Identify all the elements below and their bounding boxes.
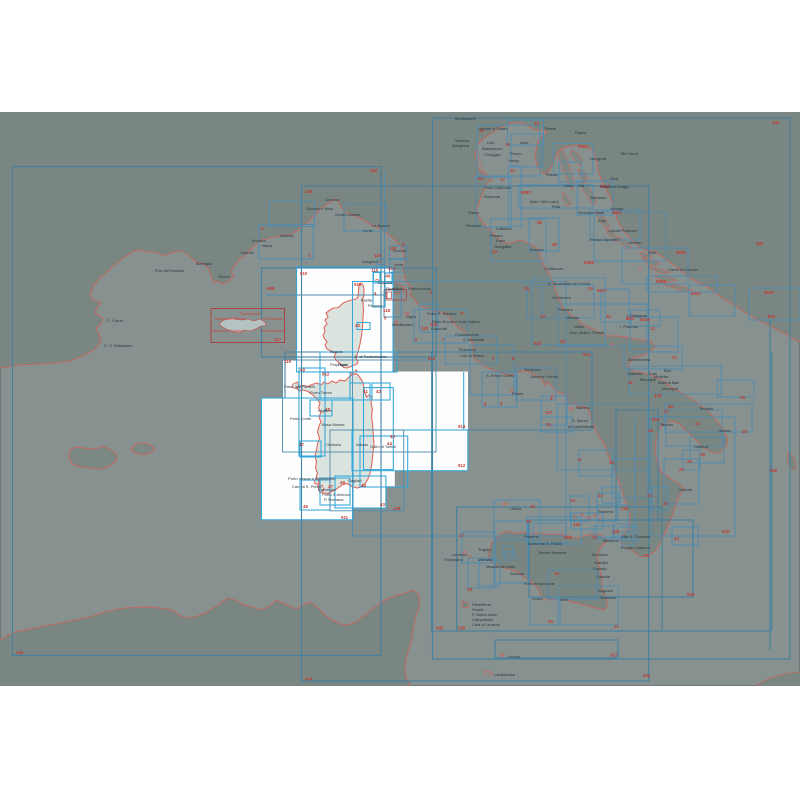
svg-text:Gallipoli: Gallipoli bbox=[694, 444, 708, 449]
svg-text:122: 122 bbox=[421, 326, 429, 331]
svg-text:Giulianova: Giulianova bbox=[552, 295, 572, 300]
svg-text:36: 36 bbox=[537, 220, 542, 225]
svg-text:Rimini: Rimini bbox=[468, 210, 479, 215]
svg-text:116: 116 bbox=[371, 268, 379, 273]
svg-text:432: 432 bbox=[16, 650, 24, 655]
svg-text:17: 17 bbox=[500, 177, 505, 182]
svg-text:914: 914 bbox=[583, 352, 591, 357]
svg-text:920: 920 bbox=[768, 314, 776, 319]
svg-text:Ancona: Ancona bbox=[530, 247, 544, 252]
svg-text:919: 919 bbox=[652, 417, 660, 422]
svg-text:40: 40 bbox=[386, 274, 391, 279]
svg-text:18: 18 bbox=[467, 587, 472, 592]
svg-text:27: 27 bbox=[664, 409, 669, 414]
svg-text:Terracina: Terracina bbox=[524, 367, 541, 372]
svg-text:Canal di Curzola: Canal di Curzola bbox=[668, 267, 698, 272]
svg-text:S. Felice Circeo: S. Felice Circeo bbox=[486, 373, 515, 378]
svg-text:Marsiglia: Marsiglia bbox=[196, 261, 213, 266]
svg-text:Cres: Cres bbox=[564, 183, 572, 188]
svg-text:Porto Vesme e Portoscuso: Porto Vesme e Portoscuso bbox=[288, 476, 336, 481]
svg-text:24: 24 bbox=[674, 536, 679, 541]
svg-text:43: 43 bbox=[390, 434, 395, 439]
svg-text:Pescara: Pescara bbox=[558, 307, 573, 312]
svg-text:Imperia: Imperia bbox=[280, 233, 294, 238]
svg-text:Reovska Vrata: Reovska Vrata bbox=[578, 210, 605, 215]
svg-text:Novigrad: Novigrad bbox=[590, 156, 606, 161]
svg-text:914: 914 bbox=[458, 424, 466, 429]
svg-text:I. Pelagosa: I. Pelagosa bbox=[627, 313, 648, 318]
svg-text:31: 31 bbox=[628, 380, 633, 385]
svg-text:Anc. della I. Tremiti: Anc. della I. Tremiti bbox=[570, 330, 604, 335]
svg-text:Chioggia: Chioggia bbox=[484, 152, 501, 157]
svg-text:19: 19 bbox=[534, 121, 539, 126]
svg-text:25: 25 bbox=[687, 459, 692, 464]
svg-text:Cannes: Cannes bbox=[240, 250, 254, 255]
svg-text:Giardini: Giardini bbox=[594, 560, 608, 565]
svg-text:Monopoli: Monopoli bbox=[662, 386, 678, 391]
svg-text:35: 35 bbox=[552, 242, 557, 247]
svg-text:432: 432 bbox=[370, 168, 378, 173]
svg-text:Ustica: Ustica bbox=[510, 506, 522, 511]
svg-text:Canale Parmani: Canale Parmani bbox=[608, 228, 637, 233]
svg-text:913: 913 bbox=[428, 356, 436, 361]
svg-text:16: 16 bbox=[505, 142, 510, 147]
svg-text:6005: 6005 bbox=[676, 250, 686, 255]
svg-text:Isola: Isola bbox=[520, 140, 529, 145]
svg-text:Taormina: Taormina bbox=[591, 552, 608, 557]
svg-text:17: 17 bbox=[459, 533, 464, 538]
svg-text:Lido: Lido bbox=[487, 140, 495, 145]
svg-text:Gorgona: Gorgona bbox=[362, 259, 378, 264]
svg-text:Prolaz Zapuntel: Prolaz Zapuntel bbox=[590, 237, 618, 242]
svg-text:44: 44 bbox=[361, 483, 366, 488]
svg-text:Ravenna: Ravenna bbox=[484, 194, 501, 199]
svg-text:6006: 6006 bbox=[656, 279, 666, 284]
svg-text:Ponza: Ponza bbox=[512, 391, 524, 396]
svg-text:Sciacca: Sciacca bbox=[510, 571, 525, 576]
svg-text:11: 11 bbox=[577, 457, 582, 462]
svg-text:6040: 6040 bbox=[764, 290, 774, 295]
svg-text:26: 26 bbox=[648, 428, 653, 433]
svg-text:Porto Ercole e Cala Galera: Porto Ercole e Cala Galera bbox=[432, 319, 481, 324]
svg-text:Pass. dei Fornelli: Pass. dei Fornelli bbox=[284, 384, 315, 389]
svg-text:Malamocco: Malamocco bbox=[482, 146, 503, 151]
svg-text:918: 918 bbox=[687, 592, 695, 597]
svg-text:912: 912 bbox=[458, 463, 466, 468]
svg-text:Nizza: Nizza bbox=[262, 243, 273, 248]
svg-text:Mola di Bari: Mola di Bari bbox=[658, 380, 679, 385]
svg-text:35: 35 bbox=[524, 286, 529, 291]
svg-text:Termini Imerese: Termini Imerese bbox=[538, 550, 567, 555]
svg-text:Sestri Levante: Sestri Levante bbox=[335, 212, 361, 217]
svg-text:19: 19 bbox=[554, 571, 559, 576]
svg-text:Trapani: Trapani bbox=[478, 547, 492, 552]
svg-text:16: 16 bbox=[530, 504, 535, 509]
svg-text:6002: 6002 bbox=[521, 190, 531, 195]
svg-text:41: 41 bbox=[363, 389, 368, 394]
svg-text:di Castellabate: di Castellabate bbox=[568, 424, 595, 429]
svg-text:26: 26 bbox=[679, 467, 684, 472]
svg-text:239: 239 bbox=[458, 626, 466, 631]
svg-text:Marciana Marina: Marciana Marina bbox=[215, 316, 246, 321]
svg-text:Molfetta: Molfetta bbox=[654, 374, 669, 379]
svg-text:6001: 6001 bbox=[578, 144, 588, 149]
svg-text:Pola: Pola bbox=[552, 204, 561, 209]
svg-text:45: 45 bbox=[303, 504, 308, 509]
svg-text:Umag: Umag bbox=[508, 158, 519, 163]
svg-text:23: 23 bbox=[644, 553, 649, 558]
svg-text:118: 118 bbox=[430, 322, 438, 327]
svg-text:911: 911 bbox=[341, 515, 349, 520]
svg-text:43: 43 bbox=[380, 502, 385, 507]
svg-text:909: 909 bbox=[267, 286, 275, 291]
svg-text:Licata: Licata bbox=[532, 596, 543, 601]
svg-text:Novalja: Novalja bbox=[610, 206, 624, 211]
svg-text:Rabac: Rabac bbox=[546, 172, 558, 177]
svg-text:Pianosa: Pianosa bbox=[368, 303, 383, 308]
svg-text:Ajaccio: Ajaccio bbox=[330, 349, 344, 354]
svg-text:Fano: Fano bbox=[496, 238, 506, 243]
svg-text:Porto Garibaldi: Porto Garibaldi bbox=[484, 185, 511, 190]
svg-text:26: 26 bbox=[478, 176, 483, 181]
svg-text:Tibi Kanal: Tibi Kanal bbox=[620, 151, 638, 156]
svg-text:434: 434 bbox=[643, 673, 651, 678]
svg-text:24: 24 bbox=[695, 421, 700, 426]
svg-text:Otranto: Otranto bbox=[718, 428, 732, 433]
svg-text:434: 434 bbox=[305, 189, 313, 194]
svg-text:Favignana: Favignana bbox=[444, 557, 463, 562]
svg-text:917: 917 bbox=[610, 653, 618, 658]
svg-text:Cala di Levante: Cala di Levante bbox=[472, 622, 501, 627]
svg-text:Porto Torres: Porto Torres bbox=[310, 390, 332, 395]
svg-text:P. Romana: P. Romana bbox=[324, 497, 344, 502]
svg-text:116: 116 bbox=[374, 253, 382, 258]
svg-text:Lampedusa: Lampedusa bbox=[494, 672, 516, 677]
svg-text:428: 428 bbox=[654, 393, 662, 398]
svg-text:6008: 6008 bbox=[584, 260, 594, 265]
svg-text:434: 434 bbox=[305, 677, 313, 682]
svg-text:910: 910 bbox=[300, 271, 308, 276]
svg-text:920: 920 bbox=[756, 241, 764, 246]
svg-text:915: 915 bbox=[354, 282, 362, 287]
svg-text:G. di Portovecchio: G. di Portovecchio bbox=[354, 354, 387, 359]
svg-text:20: 20 bbox=[510, 168, 515, 173]
svg-text:Figari: Figari bbox=[338, 362, 348, 367]
svg-text:Barletta: Barletta bbox=[628, 371, 643, 376]
svg-text:435: 435 bbox=[436, 626, 444, 631]
svg-text:129: 129 bbox=[393, 506, 401, 511]
svg-text:13: 13 bbox=[598, 493, 603, 498]
svg-text:Rijeka: Rijeka bbox=[575, 130, 587, 135]
svg-text:Bastia: Bastia bbox=[361, 298, 373, 303]
svg-text:Marina di Campo: Marina di Campo bbox=[213, 328, 244, 333]
svg-text:Cattolica: Cattolica bbox=[496, 226, 512, 231]
svg-text:32: 32 bbox=[606, 314, 611, 319]
svg-text:119: 119 bbox=[284, 359, 292, 364]
svg-text:Lerici: Lerici bbox=[363, 228, 373, 233]
svg-text:Gaeta e Formia: Gaeta e Formia bbox=[530, 374, 559, 379]
svg-text:33: 33 bbox=[560, 339, 565, 344]
svg-text:Trieste: Trieste bbox=[544, 126, 557, 131]
svg-text:Civitanova: Civitanova bbox=[544, 266, 563, 271]
svg-text:La Spezia: La Spezia bbox=[372, 223, 391, 228]
svg-text:Livorno: Livorno bbox=[393, 248, 407, 253]
svg-text:S. Benedetto del Tronto: S. Benedetto del Tronto bbox=[548, 281, 591, 286]
svg-text:Savona e Vado: Savona e Vado bbox=[306, 206, 334, 211]
svg-text:Gela: Gela bbox=[560, 597, 569, 602]
svg-text:Marsala: Marsala bbox=[478, 557, 493, 562]
svg-text:6022: 6022 bbox=[691, 291, 701, 296]
svg-text:920: 920 bbox=[770, 468, 778, 473]
svg-text:Manfredonia: Manfredonia bbox=[628, 357, 651, 362]
svg-text:12: 12 bbox=[650, 326, 655, 331]
svg-text:Catania: Catania bbox=[596, 574, 611, 579]
svg-text:29: 29 bbox=[740, 395, 745, 400]
svg-text:31: 31 bbox=[672, 355, 677, 360]
svg-text:Montecristo: Montecristo bbox=[392, 322, 413, 327]
svg-text:Litorale di Grado: Litorale di Grado bbox=[478, 126, 508, 131]
svg-text:Augusta: Augusta bbox=[598, 588, 613, 593]
svg-text:Bari: Bari bbox=[664, 368, 671, 373]
svg-text:15: 15 bbox=[526, 519, 531, 524]
svg-text:Mali i Veli Losinj: Mali i Veli Losinj bbox=[530, 199, 559, 204]
svg-text:Senigallia: Senigallia bbox=[494, 244, 512, 249]
svg-text:118: 118 bbox=[383, 308, 391, 313]
svg-text:Mazara del Vallo: Mazara del Vallo bbox=[486, 564, 516, 569]
svg-text:42: 42 bbox=[376, 389, 381, 394]
svg-text:Siracusa: Siracusa bbox=[600, 595, 616, 600]
svg-text:Vasto: Vasto bbox=[574, 324, 585, 329]
svg-text:127: 127 bbox=[545, 410, 553, 415]
svg-text:Porto Conte: Porto Conte bbox=[290, 416, 312, 421]
svg-text:912: 912 bbox=[322, 372, 330, 377]
svg-text:919: 919 bbox=[722, 529, 730, 534]
svg-text:Arbata: Arbata bbox=[356, 442, 369, 447]
svg-text:Jubranec: Jubranec bbox=[590, 195, 606, 200]
svg-text:S. Marco: S. Marco bbox=[572, 418, 589, 423]
svg-text:40: 40 bbox=[355, 323, 360, 328]
svg-text:Riccione: Riccione bbox=[466, 223, 482, 228]
svg-text:Zara: Zara bbox=[598, 218, 607, 223]
svg-text:Pirano: Pirano bbox=[510, 151, 522, 156]
svg-text:Riposto: Riposto bbox=[593, 566, 607, 571]
svg-text:28: 28 bbox=[700, 452, 705, 457]
svg-text:230: 230 bbox=[621, 506, 629, 511]
svg-text:Sibenic: Sibenic bbox=[628, 240, 641, 245]
svg-text:I. Pianosa: I. Pianosa bbox=[620, 324, 639, 329]
svg-text:Rio Marina: Rio Marina bbox=[263, 316, 283, 321]
svg-text:Golfo di Tortoli: Golfo di Tortoli bbox=[370, 444, 396, 449]
svg-text:118: 118 bbox=[573, 522, 581, 527]
svg-text:20: 20 bbox=[548, 619, 553, 624]
svg-text:Salerno: Salerno bbox=[576, 405, 591, 410]
svg-text:Lido di Roma: Lido di Roma bbox=[460, 353, 484, 358]
svg-text:117: 117 bbox=[274, 337, 282, 342]
svg-text:Bantontia S. Flavia: Bantontia S. Flavia bbox=[528, 541, 562, 546]
svg-text:430: 430 bbox=[772, 120, 780, 125]
svg-text:21: 21 bbox=[614, 624, 619, 629]
svg-text:Capraia: Capraia bbox=[378, 280, 393, 285]
svg-text:12: 12 bbox=[609, 460, 614, 465]
svg-text:Alghero: Alghero bbox=[318, 408, 333, 413]
svg-text:Palermo: Palermo bbox=[524, 534, 540, 539]
svg-text:Giglio: Giglio bbox=[406, 314, 417, 319]
svg-text:Foci del Rodano: Foci del Rodano bbox=[155, 268, 185, 273]
svg-text:Crotone: Crotone bbox=[678, 487, 693, 492]
svg-text:25: 25 bbox=[663, 501, 668, 506]
svg-text:24: 24 bbox=[647, 493, 652, 498]
svg-text:Reggio Calabria: Reggio Calabria bbox=[621, 545, 650, 550]
svg-text:Brindisi: Brindisi bbox=[700, 406, 713, 411]
svg-text:Porto Empedocle: Porto Empedocle bbox=[524, 581, 555, 586]
svg-text:10: 10 bbox=[546, 422, 551, 427]
svg-text:Ortona: Ortona bbox=[566, 315, 579, 320]
svg-text:C. S. Sebastian: C. S. Sebastian bbox=[104, 343, 132, 348]
svg-text:128: 128 bbox=[612, 529, 620, 534]
svg-text:Taranto: Taranto bbox=[660, 422, 674, 427]
svg-text:Porto S. Stefano: Porto S. Stefano bbox=[427, 311, 457, 316]
svg-text:Pavenica Draga: Pavenica Draga bbox=[600, 184, 629, 189]
svg-text:Split: Split bbox=[648, 250, 657, 255]
svg-text:C. Creus: C. Creus bbox=[107, 318, 123, 323]
svg-text:Villa S. Giovanni: Villa S. Giovanni bbox=[621, 534, 650, 539]
svg-text:47: 47 bbox=[299, 442, 304, 447]
svg-text:14: 14 bbox=[570, 498, 575, 503]
svg-text:Senj: Senj bbox=[610, 176, 618, 181]
svg-text:S. Marinella: S. Marinella bbox=[463, 337, 485, 342]
svg-text:Marghera: Marghera bbox=[452, 143, 470, 148]
svg-text:Oristano: Oristano bbox=[326, 442, 342, 447]
svg-text:34: 34 bbox=[540, 314, 545, 319]
svg-text:922: 922 bbox=[534, 341, 542, 346]
svg-text:Vada: Vada bbox=[394, 262, 404, 267]
svg-text:46: 46 bbox=[340, 480, 345, 485]
svg-text:915: 915 bbox=[564, 535, 572, 540]
svg-text:Krk: Krk bbox=[578, 183, 584, 188]
svg-text:Messina: Messina bbox=[603, 538, 619, 543]
svg-text:Tolone: Tolone bbox=[218, 274, 231, 279]
svg-text:24: 24 bbox=[588, 286, 593, 291]
svg-text:Cagliari: Cagliari bbox=[348, 478, 362, 483]
svg-text:Portovecchio: Portovecchio bbox=[408, 286, 432, 291]
svg-text:Porto Azzurro: Porto Azzurro bbox=[260, 328, 285, 333]
svg-text:Panarea: Panarea bbox=[598, 509, 614, 514]
svg-text:6027: 6027 bbox=[597, 288, 607, 293]
svg-text:Fiumicino: Fiumicino bbox=[459, 347, 477, 352]
svg-text:34: 34 bbox=[492, 249, 497, 254]
svg-text:49: 49 bbox=[300, 368, 305, 373]
svg-text:Linosa: Linosa bbox=[508, 654, 521, 659]
svg-text:28: 28 bbox=[742, 429, 747, 434]
svg-text:Piombino: Piombino bbox=[386, 286, 403, 291]
svg-text:22: 22 bbox=[592, 535, 597, 540]
svg-text:Monfalcone: Monfalcone bbox=[455, 116, 476, 121]
svg-text:Genova: Genova bbox=[325, 197, 340, 202]
svg-text:Bosa Marina: Bosa Marina bbox=[322, 422, 345, 427]
